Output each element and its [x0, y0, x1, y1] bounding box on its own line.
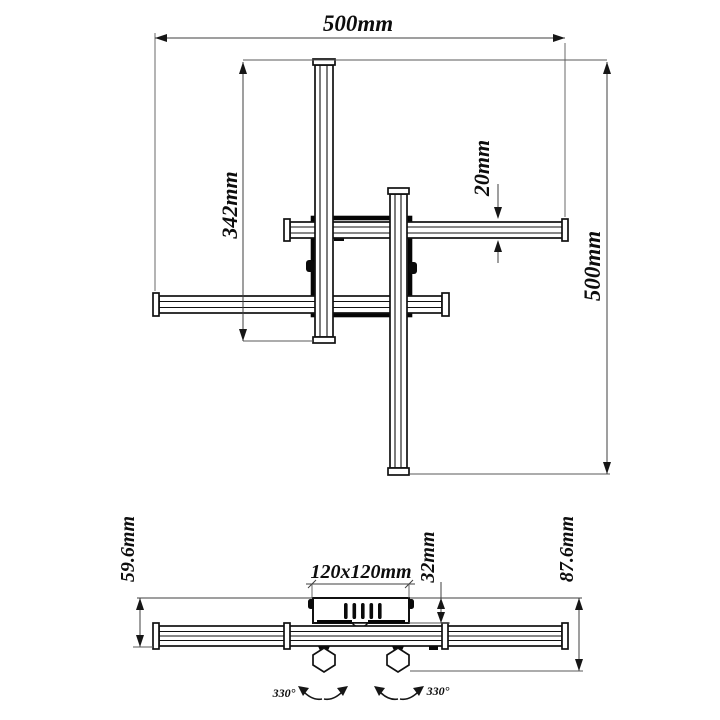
arrowhead	[155, 34, 167, 42]
vent-slot	[370, 603, 374, 619]
vent-slot	[353, 603, 357, 619]
top-view: 500mm 342mm 500mm 20mm	[153, 11, 611, 475]
rotation-indicator-left: 330°	[272, 686, 348, 700]
canopy-height-label: 32mm	[417, 531, 439, 583]
bar-width-label: 20mm	[469, 140, 494, 197]
canopy-tab-left	[308, 599, 314, 609]
bar-end-cap	[153, 623, 159, 649]
bar-end-cap	[442, 293, 449, 316]
arrowhead	[603, 62, 611, 74]
arrowhead	[603, 462, 611, 474]
bar-nub	[429, 646, 438, 650]
arrowhead	[136, 598, 144, 610]
lamp-dimension-drawing: 500mm 342mm 500mm 20mm	[0, 0, 720, 720]
arrowhead	[437, 612, 445, 623]
canopy-tab-right	[408, 599, 414, 609]
arrowhead	[239, 329, 247, 341]
dim-canopy-height: 32mm	[409, 531, 450, 623]
drop-to-bar-label: 59.6mm	[117, 516, 139, 582]
bar-end-cap	[153, 293, 159, 316]
overall-depth-label: 500mm	[580, 231, 605, 301]
bar-left-vertical	[313, 59, 335, 343]
arrowhead	[239, 62, 247, 74]
canopy-size-label: 120x120mm	[310, 561, 411, 583]
dim-overall-depth: 500mm	[410, 62, 611, 474]
bar-joint	[284, 623, 290, 649]
dim-canopy-size: 120x120mm	[306, 561, 415, 598]
bar-end-cap	[562, 623, 568, 649]
hex-knob-left	[313, 646, 335, 672]
bar-end-cap	[388, 468, 409, 475]
rotation-indicator-right: 330°	[374, 684, 450, 699]
overall-drop-label: 87.6mm	[556, 516, 578, 582]
canopy-box	[308, 598, 414, 628]
arrowhead	[494, 207, 502, 219]
overall-width-label: 500mm	[323, 11, 393, 36]
dim-drop-to-bar: 59.6mm	[117, 516, 153, 647]
arrowhead	[494, 240, 502, 252]
bar-end-cap	[562, 219, 568, 241]
bar-right-vertical	[388, 188, 409, 475]
bar-assembly-side	[153, 623, 568, 650]
vent-slot	[361, 603, 365, 619]
arrowhead	[437, 598, 445, 609]
bar-length-label: 342mm	[217, 171, 242, 239]
dim-bar-width: 20mm	[469, 140, 502, 263]
arrowhead	[136, 635, 144, 647]
bar-end-cap	[284, 219, 290, 241]
plate-tab-right	[409, 262, 417, 274]
bar-end-cap	[388, 188, 409, 194]
arrowhead	[553, 34, 565, 42]
rotation-right-label: 330°	[426, 684, 450, 698]
vent-slot	[378, 603, 382, 619]
vent-slot	[344, 603, 348, 619]
arrowhead	[575, 598, 583, 610]
technical-drawing: 500mm 342mm 500mm 20mm	[0, 0, 720, 720]
bar-end-cap	[313, 337, 335, 343]
rotation-left-label: 330°	[272, 686, 296, 700]
arrowhead	[575, 659, 583, 671]
plate-tab-left	[306, 260, 314, 272]
bar-joint	[442, 623, 448, 649]
side-view: 59.6mm 87.6mm 120x120mm 32mm	[117, 516, 583, 700]
hex-knob-right	[387, 646, 409, 672]
